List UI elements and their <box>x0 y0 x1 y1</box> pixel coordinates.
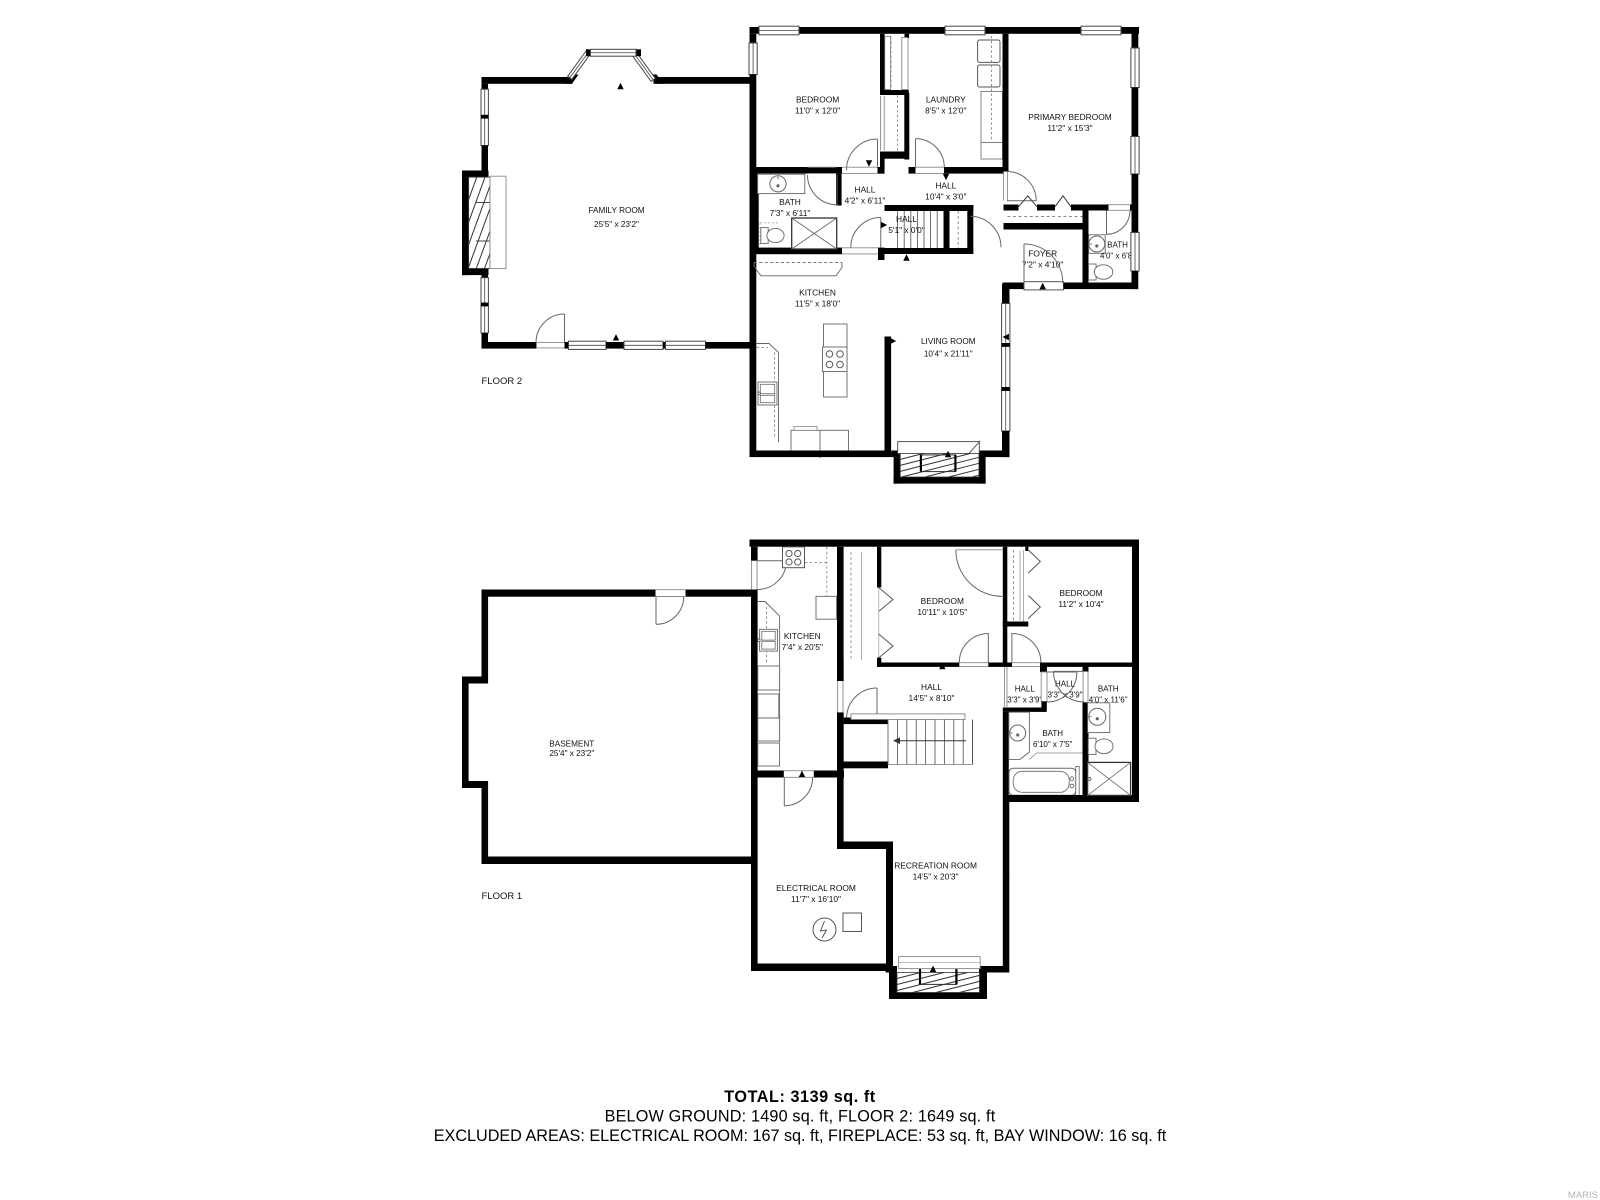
svg-text:FLOOR 2: FLOOR 2 <box>482 376 523 387</box>
svg-text:EXCLUDED AREAS: ELECTRICAL ROO: EXCLUDED AREAS: ELECTRICAL ROOM: 167 sq.… <box>434 1127 1167 1145</box>
svg-text:11'2" x 10'4": 11'2" x 10'4" <box>1058 599 1103 609</box>
svg-text:HALL: HALL <box>1015 685 1036 694</box>
svg-text:14'5" x 8'10": 14'5" x 8'10" <box>909 693 955 703</box>
svg-text:10'4" x 3'0": 10'4" x 3'0" <box>925 191 966 201</box>
svg-text:ELECTRICAL ROOM: ELECTRICAL ROOM <box>776 883 856 893</box>
svg-text:7'2" x 4'10": 7'2" x 4'10" <box>1022 259 1063 269</box>
svg-text:LAUNDRY: LAUNDRY <box>926 94 966 104</box>
svg-text:BELOW GROUND: 1490 sq. ft, FLO: BELOW GROUND: 1490 sq. ft, FLOOR 2: 1649… <box>605 1108 996 1126</box>
svg-text:BATH: BATH <box>1042 729 1063 738</box>
svg-text:MARIS: MARIS <box>1568 1190 1598 1200</box>
svg-text:10'4" x 21'11": 10'4" x 21'11" <box>924 350 973 359</box>
svg-text:4'2" x 6'11": 4'2" x 6'11" <box>845 195 886 205</box>
svg-text:HALL: HALL <box>921 682 942 692</box>
svg-text:3'3" x 3'9": 3'3" x 3'9" <box>1007 696 1042 705</box>
svg-text:HALL: HALL <box>935 180 956 190</box>
svg-text:BEDROOM: BEDROOM <box>796 94 839 104</box>
svg-text:11'5" x 18'0": 11'5" x 18'0" <box>795 298 840 308</box>
svg-text:11'2" x 15'3": 11'2" x 15'3" <box>1047 123 1092 133</box>
svg-text:11'7" x 16'10": 11'7" x 16'10" <box>791 894 841 904</box>
svg-text:FLOOR 1: FLOOR 1 <box>482 891 523 902</box>
svg-text:4'0" x 11'6": 4'0" x 11'6" <box>1089 696 1128 705</box>
svg-text:LIVING ROOM: LIVING ROOM <box>921 337 976 346</box>
svg-text:RECREATION ROOM: RECREATION ROOM <box>894 861 977 871</box>
svg-text:BEDROOM: BEDROOM <box>921 596 964 606</box>
svg-text:4'0" x 6'8": 4'0" x 6'8" <box>1100 251 1135 260</box>
svg-text:7'4" x 20'5": 7'4" x 20'5" <box>782 642 823 652</box>
svg-text:BEDROOM: BEDROOM <box>1059 588 1102 598</box>
svg-text:PRIMARY BEDROOM: PRIMARY BEDROOM <box>1028 112 1111 122</box>
svg-text:14'5" x 20'3": 14'5" x 20'3" <box>913 872 959 882</box>
svg-text:HALL: HALL <box>855 184 876 194</box>
svg-text:10'11" x 10'5": 10'11" x 10'5" <box>917 607 967 617</box>
svg-text:BATH: BATH <box>1098 685 1119 694</box>
svg-text:BATH: BATH <box>1107 240 1128 249</box>
svg-text:25'4" x 23'2": 25'4" x 23'2" <box>549 749 594 758</box>
svg-text:BASEMENT: BASEMENT <box>549 739 594 748</box>
svg-text:TOTAL: 3139 sq. ft: TOTAL: 3139 sq. ft <box>724 1088 875 1106</box>
svg-text:8'5" x 12'0": 8'5" x 12'0" <box>925 105 966 115</box>
svg-text:KITCHEN: KITCHEN <box>784 631 821 641</box>
svg-text:KITCHEN: KITCHEN <box>799 287 836 297</box>
svg-text:5'1" x 0'0": 5'1" x 0'0" <box>888 225 925 235</box>
svg-text:FAMILY ROOM: FAMILY ROOM <box>588 206 644 215</box>
svg-text:7'3" x 6'11": 7'3" x 6'11" <box>770 208 811 218</box>
svg-text:BATH: BATH <box>779 197 801 207</box>
svg-text:6'10" x 7'5": 6'10" x 7'5" <box>1033 740 1073 749</box>
svg-text:11'0" x 12'0": 11'0" x 12'0" <box>795 105 840 115</box>
svg-text:25'5" x 23'2": 25'5" x 23'2" <box>594 220 639 229</box>
svg-text:HALL: HALL <box>896 214 917 224</box>
